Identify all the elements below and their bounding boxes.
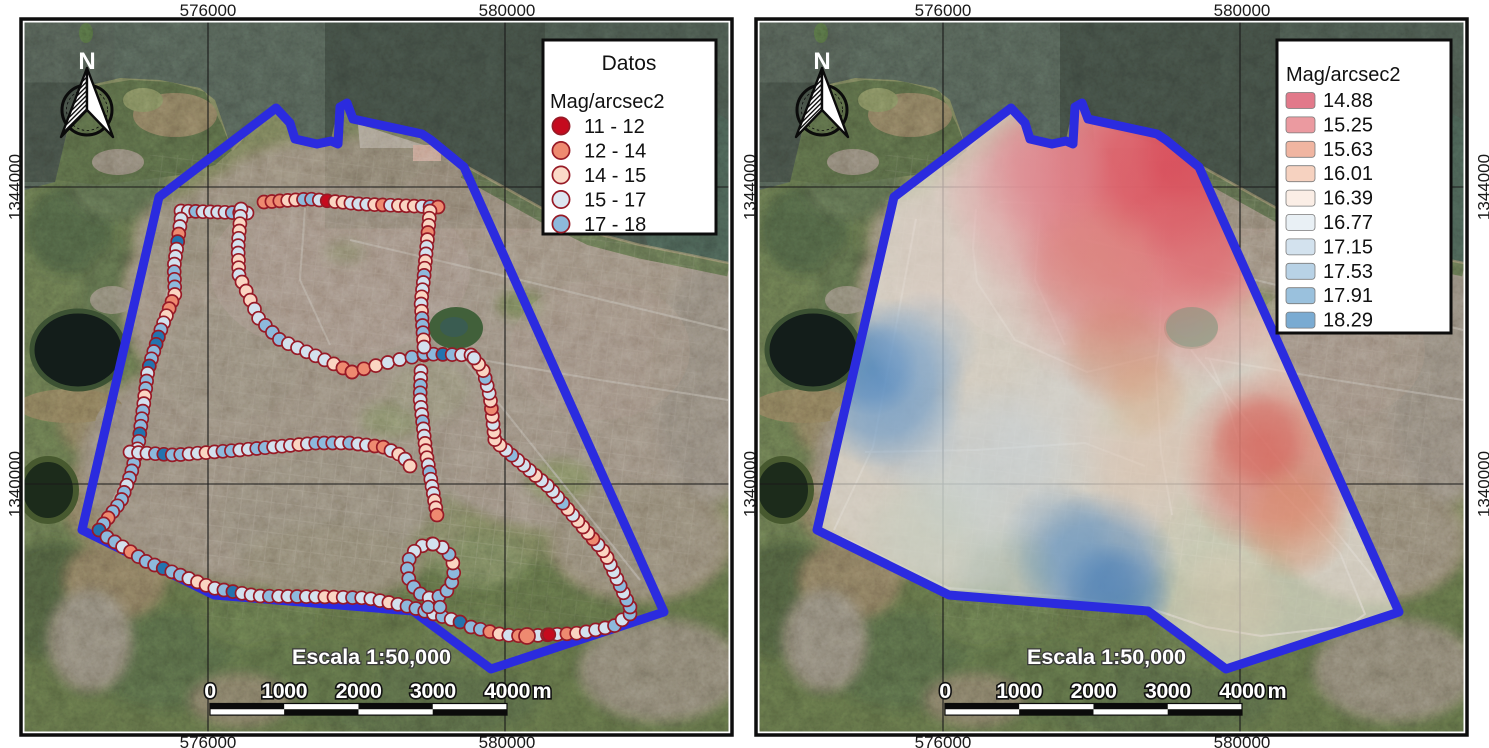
svg-text:4000: 4000 xyxy=(1219,679,1265,703)
svg-text:17.91: 17.91 xyxy=(1323,285,1373,307)
svg-text:16.39: 16.39 xyxy=(1323,188,1373,210)
svg-text:12 - 14: 12 - 14 xyxy=(584,141,646,163)
svg-text:Datos: Datos xyxy=(602,52,657,75)
svg-text:576000: 576000 xyxy=(180,1,237,20)
svg-text:m: m xyxy=(532,679,551,703)
svg-text:15 - 17: 15 - 17 xyxy=(584,190,646,212)
svg-text:0: 0 xyxy=(939,679,951,703)
svg-text:580000: 580000 xyxy=(479,1,536,20)
svg-text:2000: 2000 xyxy=(336,679,382,703)
svg-text:576000: 576000 xyxy=(915,1,972,20)
svg-text:576000: 576000 xyxy=(915,733,972,748)
svg-text:17.53: 17.53 xyxy=(1323,261,1373,283)
svg-text:1344000: 1344000 xyxy=(1474,154,1489,220)
svg-text:580000: 580000 xyxy=(1214,733,1271,748)
svg-text:1344000: 1344000 xyxy=(740,154,759,220)
svg-text:16.01: 16.01 xyxy=(1323,163,1373,185)
svg-text:3000: 3000 xyxy=(410,679,456,703)
svg-text:1000: 1000 xyxy=(996,679,1042,703)
svg-text:1340000: 1340000 xyxy=(1474,451,1489,517)
svg-text:Mag/arcsec2: Mag/arcsec2 xyxy=(1286,64,1401,86)
svg-text:2000: 2000 xyxy=(1071,679,1117,703)
svg-text:0: 0 xyxy=(204,679,216,703)
svg-text:1340000: 1340000 xyxy=(740,451,759,517)
svg-text:14 - 15: 14 - 15 xyxy=(584,165,646,187)
svg-text:3000: 3000 xyxy=(1145,679,1191,703)
svg-text:Escala 1:50,000: Escala 1:50,000 xyxy=(292,645,451,669)
svg-text:1344000: 1344000 xyxy=(5,154,24,220)
svg-text:18.29: 18.29 xyxy=(1323,310,1373,332)
svg-text:Escala 1:50,000: Escala 1:50,000 xyxy=(1027,645,1186,669)
svg-text:4000: 4000 xyxy=(484,679,530,703)
svg-text:11 - 12: 11 - 12 xyxy=(584,116,645,138)
svg-text:16.77: 16.77 xyxy=(1323,212,1373,234)
svg-text:17 - 18: 17 - 18 xyxy=(584,214,646,236)
svg-text:580000: 580000 xyxy=(479,733,536,748)
svg-text:1000: 1000 xyxy=(261,679,307,703)
svg-text:14.88: 14.88 xyxy=(1323,90,1373,112)
svg-text:580000: 580000 xyxy=(1214,1,1271,20)
svg-text:15.25: 15.25 xyxy=(1323,114,1373,136)
svg-text:15.63: 15.63 xyxy=(1323,139,1373,161)
svg-text:Mag/arcsec2: Mag/arcsec2 xyxy=(550,91,665,113)
svg-text:1340000: 1340000 xyxy=(5,451,24,517)
svg-text:576000: 576000 xyxy=(180,733,237,748)
svg-text:17.15: 17.15 xyxy=(1323,236,1373,258)
svg-text:m: m xyxy=(1267,679,1286,703)
